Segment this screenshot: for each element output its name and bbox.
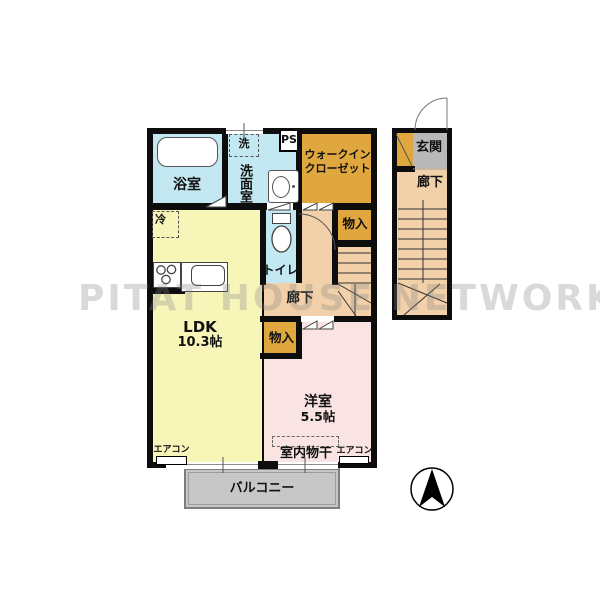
toilet-tank	[272, 213, 291, 224]
bathroom-label: 浴室	[150, 177, 224, 193]
window-western-south	[277, 462, 338, 469]
washroom-label: 洗面室	[236, 157, 251, 209]
entrance-label: 玄関	[410, 141, 448, 156]
hallway-entry-label: 廊下	[413, 176, 447, 191]
ldk-label: LDK 10.3帖	[158, 319, 242, 351]
closet-upper-label: 物入	[336, 217, 374, 231]
wic-door-gap	[302, 203, 333, 210]
washbasin-icon	[268, 170, 299, 203]
ldk-name: LDK	[158, 319, 242, 336]
north-compass	[411, 468, 453, 510]
washer-space-label: 洗	[230, 138, 258, 151]
pipe-space-box: PS	[279, 131, 297, 152]
pipe-space-label: PS	[281, 134, 297, 147]
wall-closet-lower-south	[260, 353, 302, 359]
walkin-closet-line2: クローゼット	[301, 162, 374, 176]
aircon-right-label: エアコン	[336, 446, 373, 456]
bathtub-icon	[157, 137, 218, 167]
ldk-size: 10.3帖	[158, 336, 242, 351]
washroom-door-gap	[267, 203, 293, 210]
western-room-name: 洋室	[278, 394, 358, 410]
wall-under-shoebox	[393, 166, 415, 172]
toilet-label: トイレ	[262, 264, 299, 278]
closet-lower-label: 物入	[263, 331, 300, 345]
walkin-closet-line1: ウォークイン	[301, 148, 374, 162]
washer-space-box: 洗	[229, 134, 259, 157]
floor-plan-canvas: 洗 PS 冷 浴室 洗面室 ウォークイン クローゼット トイレ 廊下 物入 物入…	[0, 0, 600, 600]
watermark: PITAT HOUSE NETWORK	[78, 278, 600, 319]
wall-south-stub	[258, 461, 278, 469]
washbasin-faucet	[292, 185, 295, 188]
entrance-door-arc	[415, 98, 447, 130]
western-room-label: 洋室 5.5帖	[278, 394, 358, 424]
western-room-size: 5.5帖	[278, 410, 358, 424]
refrigerator-label: 冷	[155, 214, 166, 227]
aircon-right-box	[339, 456, 369, 464]
balcony-label: バルコニー	[200, 482, 324, 497]
wall-closet-upper-south	[332, 240, 374, 247]
wall-bath-washroom	[222, 131, 228, 205]
refrigerator-box: 冷	[152, 211, 179, 238]
aircon-left-box	[156, 456, 187, 465]
indoor-drying-label: 室内物干	[270, 447, 342, 462]
walkin-closet-label: ウォークイン クローゼット	[301, 148, 374, 177]
aircon-left-label: エアコン	[153, 445, 190, 455]
washbasin-bowl	[272, 176, 290, 198]
